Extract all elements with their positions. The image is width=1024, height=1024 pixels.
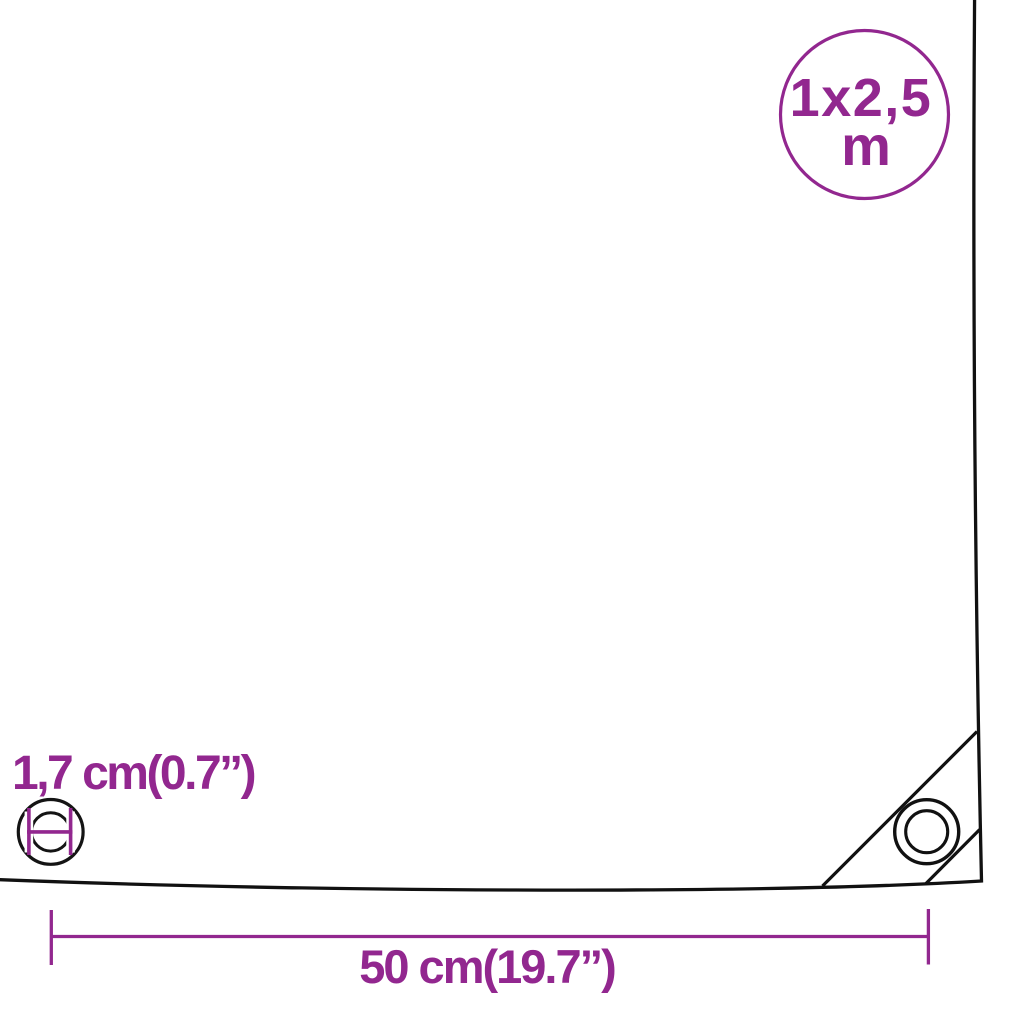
svg-text:m: m: [841, 114, 891, 177]
svg-text:50 cm(19.7”): 50 cm(19.7”): [359, 940, 615, 993]
svg-text:1,7 cm(0.7”): 1,7 cm(0.7”): [12, 747, 255, 800]
